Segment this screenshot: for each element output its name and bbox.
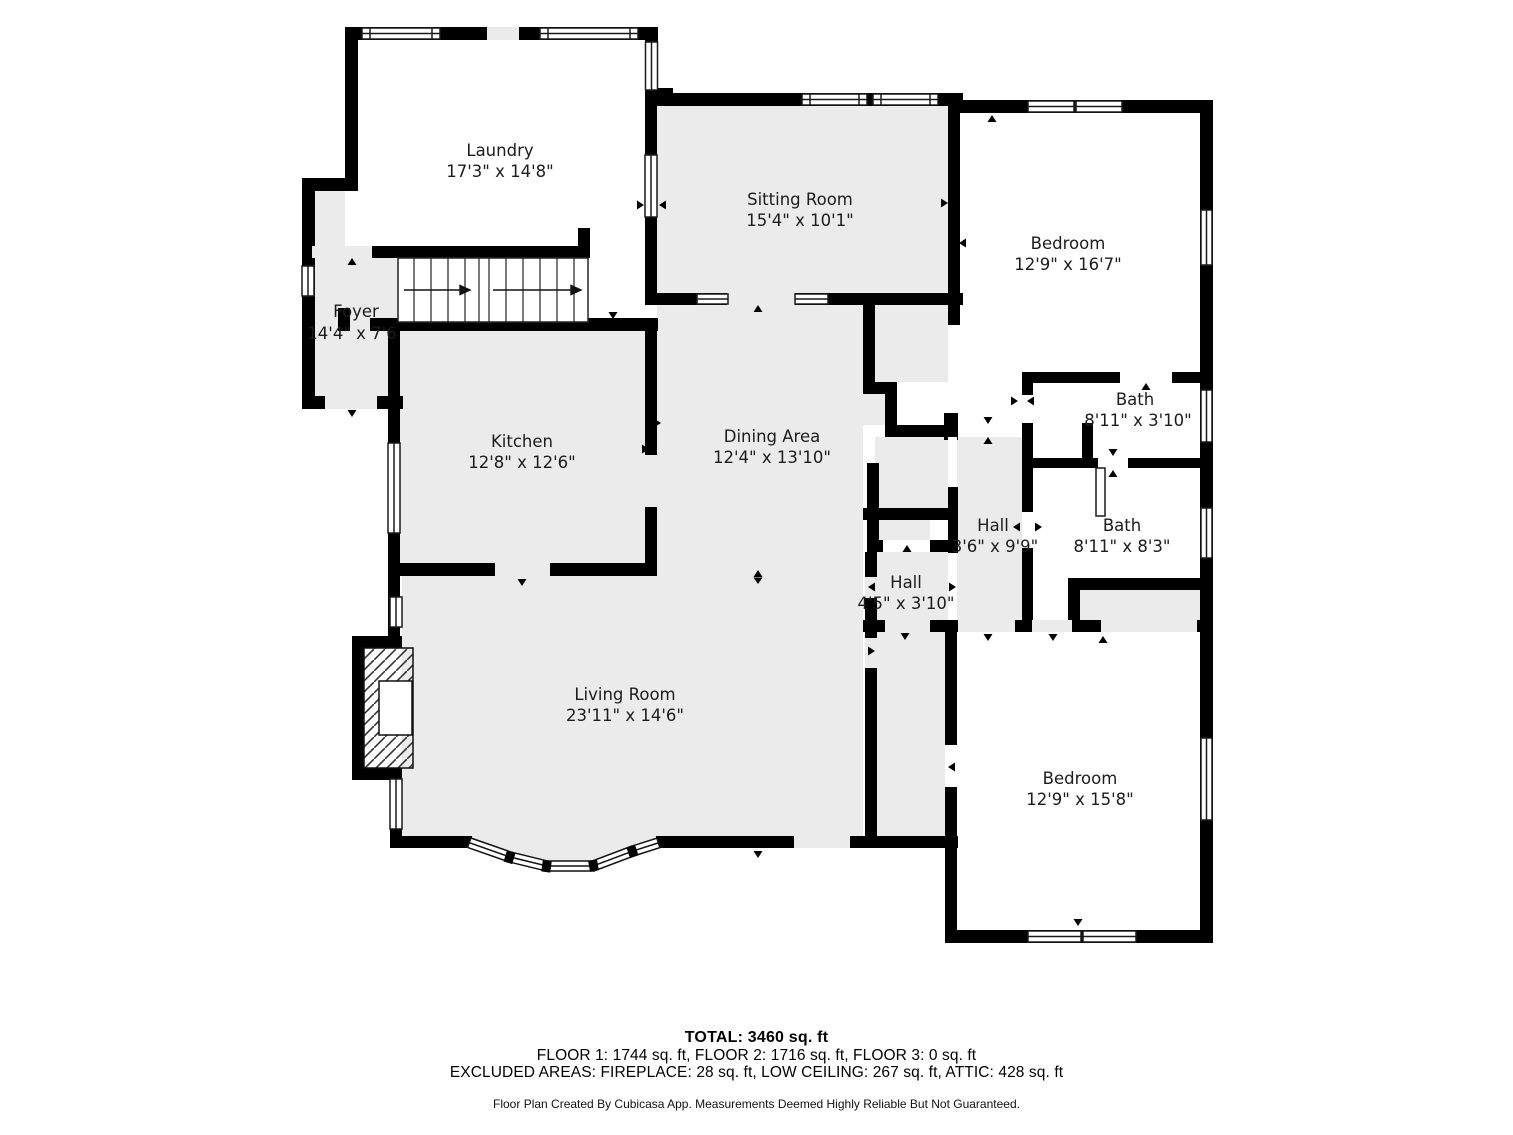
window-icon	[302, 266, 314, 296]
window-icon	[1201, 390, 1212, 442]
closet-br	[1080, 590, 1200, 620]
window-icon	[540, 28, 638, 39]
disclaimer-text: Floor Plan Created By Cubicasa App. Meas…	[0, 1097, 1513, 1111]
svg-text:12'4" x 13'10": 12'4" x 13'10"	[713, 448, 831, 467]
svg-text:8'11" x 3'10": 8'11" x 3'10"	[1084, 411, 1192, 430]
window-icon	[802, 94, 867, 105]
svg-text:Hall: Hall	[977, 516, 1009, 535]
window-icon	[362, 28, 440, 39]
door-leaf	[1096, 468, 1105, 516]
svg-text:Laundry: Laundry	[466, 141, 533, 160]
window-icon	[697, 294, 728, 304]
window-icon	[1028, 101, 1074, 112]
fireplace	[364, 648, 413, 768]
svg-text:Bedroom: Bedroom	[1043, 769, 1118, 788]
window-icon	[795, 294, 828, 304]
svg-text:Bedroom: Bedroom	[1031, 234, 1106, 253]
window-icon	[645, 155, 657, 217]
window-icon	[390, 779, 402, 829]
svg-text:12'9" x 15'8": 12'9" x 15'8"	[1026, 790, 1134, 809]
svg-text:Foyer: Foyer	[333, 302, 379, 321]
window-icon	[1201, 508, 1212, 558]
closet-a	[875, 305, 948, 382]
svg-text:3'6" x 9'9": 3'6" x 9'9"	[952, 537, 1039, 556]
staircase	[398, 258, 588, 322]
svg-text:Sitting Room: Sitting Room	[747, 190, 853, 209]
window-icon	[1201, 738, 1212, 820]
window-icon	[1028, 931, 1081, 942]
svg-text:Kitchen: Kitchen	[491, 432, 553, 451]
window-icon	[873, 94, 938, 105]
svg-text:23'11" x 14'6": 23'11" x 14'6"	[566, 706, 684, 725]
svg-text:Bath: Bath	[1116, 390, 1154, 409]
total-area-text: TOTAL: 3460 sq. ft	[0, 1029, 1513, 1047]
laundry-strip	[588, 258, 645, 318]
svg-text:Bath: Bath	[1103, 516, 1141, 535]
svg-text:8'11" x 8'3": 8'11" x 8'3"	[1074, 537, 1171, 556]
window-icon	[1076, 101, 1122, 112]
window-icon	[646, 42, 658, 90]
window-icon	[388, 443, 400, 533]
floor-areas-text: FLOOR 1: 1744 sq. ft, FLOOR 2: 1716 sq. …	[0, 1047, 1513, 1065]
fireplace-hearth	[379, 681, 412, 735]
svg-text:Living Room: Living Room	[574, 685, 675, 704]
svg-text:12'8" x 12'6": 12'8" x 12'6"	[468, 453, 576, 472]
svg-text:Dining Area: Dining Area	[724, 427, 820, 446]
svg-text:17'3" x 14'8": 17'3" x 14'8"	[446, 162, 554, 181]
floor-plan-drawing: Laundry 17'3" x 14'8" Sitting Room 15'4"…	[0, 0, 1513, 1135]
svg-text:15'4" x 10'1": 15'4" x 10'1"	[746, 211, 854, 230]
svg-text:12'9" x 16'7": 12'9" x 16'7"	[1014, 255, 1122, 274]
floor-plan-page: Laundry 17'3" x 14'8" Sitting Room 15'4"…	[0, 0, 1513, 1135]
svg-text:14'4" x 7'6: 14'4" x 7'6	[307, 324, 396, 343]
window-icon	[1083, 931, 1136, 942]
dining-nook	[875, 437, 950, 508]
nook-small	[879, 518, 930, 540]
svg-text:4'5" x 3'10": 4'5" x 3'10"	[858, 594, 955, 613]
window-icon	[1201, 210, 1212, 265]
svg-text:Hall: Hall	[890, 573, 922, 592]
excluded-areas-text: EXCLUDED AREAS: FIREPLACE: 28 sq. ft, LO…	[0, 1064, 1513, 1082]
corridor	[877, 632, 945, 836]
window-icon	[390, 597, 402, 627]
